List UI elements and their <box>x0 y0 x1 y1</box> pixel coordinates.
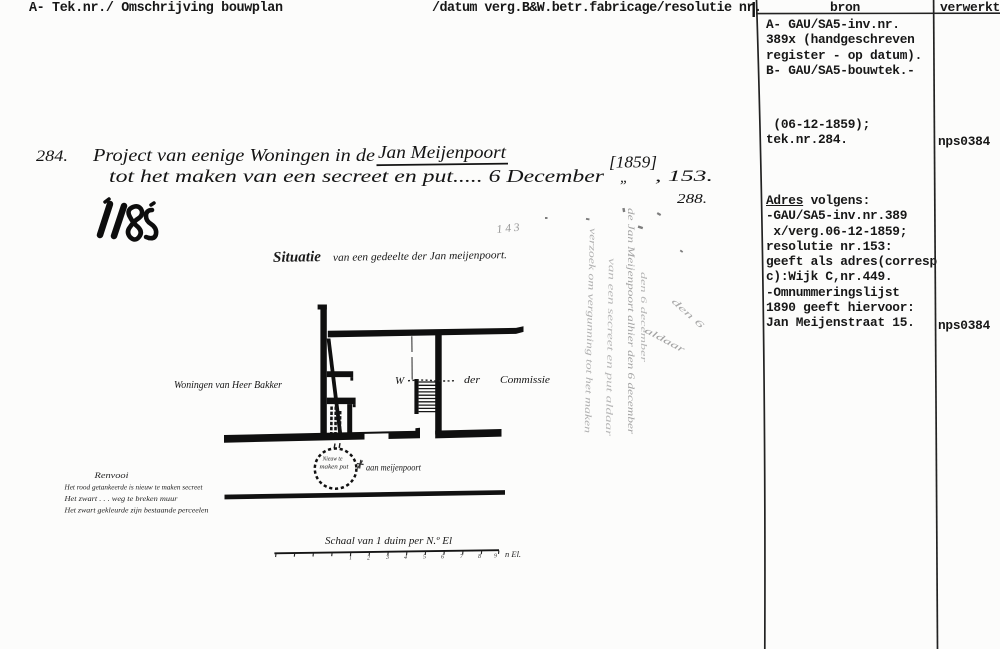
svg-text:1: 1 <box>349 556 352 562</box>
svg-text:Renvooi: Renvooi <box>93 471 128 480</box>
svg-text:de Jan Meijenpoort alhier den: de Jan Meijenpoort alhier den 6 december <box>625 208 635 434</box>
svg-text:9: 9 <box>494 554 497 560</box>
svg-text:, 153.: , 153. <box>655 168 713 185</box>
svg-text:Nieuw te: Nieuw te <box>322 457 343 463</box>
svg-text:Jan Meijenpoort: Jan Meijenpoort <box>378 142 507 162</box>
svg-text:6: 6 <box>441 554 444 560</box>
svg-text:Commissie: Commissie <box>500 375 551 386</box>
svg-text:Het zwart . . . weg t: Het zwart . . . weg te breken muur <box>63 494 177 503</box>
svg-text:tot het maken van een secreet: tot het maken van een secreet en put....… <box>109 166 604 186</box>
svg-text:van een secreet en put aldaar: van een secreet en put aldaar <box>603 258 616 437</box>
svg-text:3: 3 <box>385 555 389 561</box>
svg-text:n El.: n El. <box>505 549 521 559</box>
svg-text:Project van eenige Woningen in: Project van eenige Woningen in de <box>92 145 375 165</box>
svg-text:Het zwart gekleurde zijn besta: Het zwart gekleurde zijn bestaande perce… <box>63 506 208 515</box>
svg-text:der: der <box>464 375 480 386</box>
svg-text:4: 4 <box>404 554 407 561</box>
svg-text:den 6: den 6 <box>670 296 707 331</box>
svg-text:maken put: maken put <box>320 465 349 471</box>
svg-text:Het rood getankeerde is nieuw: Het rood getankeerde is nieuw te maken s… <box>64 483 204 492</box>
svg-text:288.: 288. <box>677 192 707 207</box>
svg-text:verzoek om vergunning tot het: verzoek om vergunning tot het maken <box>582 228 597 434</box>
svg-text:Woningen van Heer Bakker: Woningen van Heer Bakker <box>174 380 282 391</box>
svg-text:[1859]: [1859] <box>609 153 657 172</box>
svg-text:aan meijenpoort: aan meijenpoort <box>366 463 421 473</box>
svg-text:8: 8 <box>478 554 481 560</box>
svg-text:W: W <box>395 375 405 387</box>
svg-text:1 4 3: 1 4 3 <box>496 222 520 236</box>
svg-text:den 6 december: den 6 december <box>639 272 649 363</box>
svg-text:5: 5 <box>423 555 426 561</box>
svg-text:van een gedeelte der Jan meije: van een gedeelte der Jan meijenpoort. <box>333 249 507 264</box>
svg-text:Situatie: Situatie <box>273 249 322 266</box>
svg-text:Schaal van 1 duim per N.º El: Schaal van 1 duim per N.º El <box>325 536 452 547</box>
svg-text:„: „ <box>620 170 628 186</box>
svg-text:2: 2 <box>367 555 370 561</box>
svg-text:284.: 284. <box>36 148 68 165</box>
svg-text:7: 7 <box>460 554 464 560</box>
